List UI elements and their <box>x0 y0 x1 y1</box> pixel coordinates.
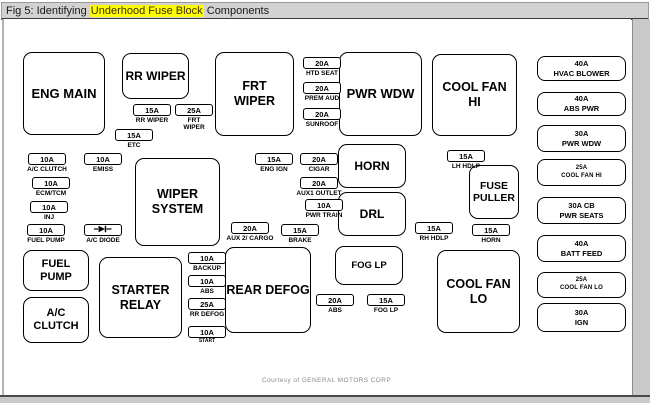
fuse-15a-rr-wiper: 15ARR WIPER <box>133 104 171 124</box>
relay-a-c-clutch: A/CCLUTCH <box>23 297 89 343</box>
relay-fuel-pump: FUELPUMP <box>23 250 89 291</box>
relay-wiper-system: WIPERSYSTEM <box>135 158 220 246</box>
fuse-25a-cool-fan-lo: 25ACOOL FAN LO <box>537 272 626 298</box>
fuse-25a-cool-fan-hi: 25ACOOL FAN HI <box>537 159 626 186</box>
fuse-20a-aux1-outlet: 20AAUX1 OUTLET <box>300 177 338 197</box>
fuse-15a-horn: 15AHORN <box>472 224 510 244</box>
fuse-40a-hvac-blower: 40AHVAC BLOWER <box>537 56 626 81</box>
fuse-15a-brake: 15ABRAKE <box>281 224 319 244</box>
relay-rr-wiper: RR WIPER <box>122 53 189 99</box>
fuse-15a-rh-hdlp: 15ARH HDLP <box>415 222 453 242</box>
fuse-20a-cigar: 20ACIGAR <box>300 153 338 173</box>
relay-rear-defog: REAR DEFOG <box>225 247 311 333</box>
fuse-diode-a-c-diode: A/C DIODE <box>84 224 122 244</box>
relay-horn: HORN <box>338 144 406 188</box>
fuse-10a-a-c-clutch: 10AA/C CLUTCH <box>28 153 66 173</box>
fuse-15a-fog-lp: 15AFOG LP <box>367 294 405 314</box>
fuse-40a-batt-feed: 40ABATT FEED <box>537 235 626 262</box>
courtesy-credit: Courtesy of GENERAL MOTORS CORP <box>262 377 391 384</box>
fuse-25a-frt-wiper: 25AFRTWIPER <box>175 104 213 132</box>
fuse-10a-pwr-train: 10APWR TRAIN <box>305 199 343 219</box>
diode-icon <box>94 225 112 235</box>
fuse-10a-ecm-tcm: 10AECM/TCM <box>32 177 70 197</box>
fuse-20a-sunroof: 20ASUNROOF <box>303 108 341 128</box>
relay-cool-fan-hi: COOL FANHI <box>432 54 517 136</box>
fuse-10a-start: 10ASTART <box>188 326 226 345</box>
fuse-15a-etc: 15AETC <box>115 129 153 149</box>
fuse-30a-cb-pwr-seats: 30A CBPWR SEATS <box>537 197 626 224</box>
relay-fuse-puller: FUSEPULLER <box>469 165 519 219</box>
fuse-10a-backup: 10ABACKUP <box>188 252 226 272</box>
fuse-20a-aux-2-cargo: 20AAUX 2/ CARGO <box>231 222 269 242</box>
relay-frt-wiper: FRTWIPER <box>215 52 294 136</box>
relay-fog-lp: FOG LP <box>335 246 403 285</box>
fuse-15a-eng-ign: 15AENG IGN <box>255 153 293 173</box>
relay-cool-fan-lo: COOL FANLO <box>437 250 520 333</box>
fuse-30a-pwr-wdw: 30APWR WDW <box>537 125 626 152</box>
fuse-25a-rr-defog: 25ARR DEFOG <box>188 298 226 318</box>
fuse-40a-abs-pwr: 40AABS PWR <box>537 92 626 116</box>
fuse-10a-inj: 10AINJ <box>30 201 68 221</box>
fuse-block-diagram: ENG MAINRR WIPERFRTWIPERPWR WDWCOOL FANH… <box>0 0 650 403</box>
relay-drl: DRL <box>338 192 406 236</box>
fuse-20a-prem-aud: 20APREM AUD <box>303 82 341 102</box>
relay-eng-main: ENG MAIN <box>23 52 105 135</box>
fuse-10a-fuel-pump: 10AFUEL PUMP <box>27 224 65 244</box>
fuse-20a-htd-seat: 20AHTD SEAT <box>303 57 341 77</box>
relay-pwr-wdw: PWR WDW <box>339 52 422 136</box>
fuse-30a-ign: 30AIGN <box>537 303 626 332</box>
fuse-20a-abs: 20AABS <box>316 294 354 314</box>
fuse-10a-abs: 10AABS <box>188 275 226 295</box>
figure-window: Fig 5: Identifying Underhood Fuse Block … <box>0 0 650 403</box>
fuse-10a-emiss: 10AEMISS <box>84 153 122 173</box>
fuse-15a-lh-hdlp: 15ALH HDLP <box>447 150 485 170</box>
relay-starter-relay: STARTERRELAY <box>99 257 182 338</box>
